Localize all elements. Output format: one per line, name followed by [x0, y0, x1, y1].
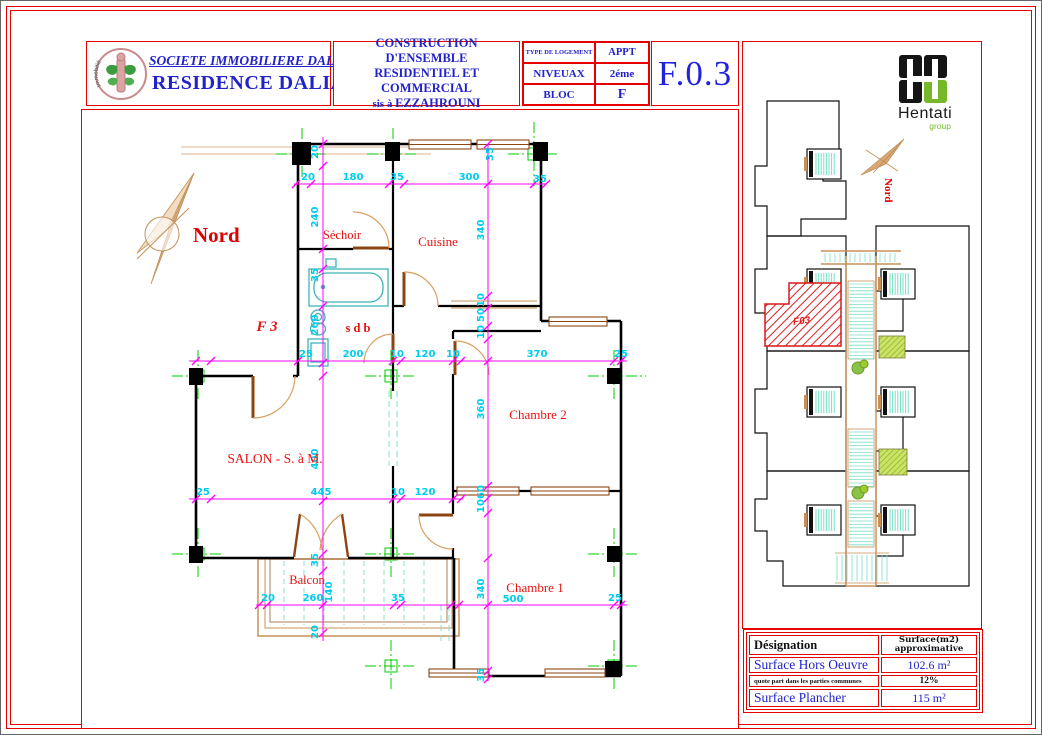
svg-text:25: 25 [614, 349, 628, 360]
svg-text:Chambre 1: Chambre 1 [506, 580, 563, 595]
svg-text:35: 35 [390, 172, 404, 183]
company-title-block: Immobilière Dalia SOCIETE IMMOBILIERE DA… [86, 41, 331, 106]
svg-text:20: 20 [301, 172, 315, 183]
north-arrow [137, 173, 194, 284]
svg-text:10: 10 [476, 499, 487, 513]
hentati-group-text: group [929, 121, 951, 131]
flat-type-label: F 3 [256, 319, 278, 335]
balcony-railing [258, 559, 459, 636]
site-north-label: Nord [882, 178, 894, 202]
svg-text:300: 300 [459, 172, 480, 183]
svg-text:445: 445 [311, 487, 332, 498]
svg-text:35: 35 [533, 174, 547, 185]
svg-text:25: 25 [299, 349, 313, 360]
surface-table-header-designation: Désignation [749, 635, 879, 655]
surface-hors-oeuvre-value: 102.6 m² [881, 657, 977, 673]
svg-text:260: 260 [310, 315, 321, 336]
drawing-code: F.0.3 [658, 54, 732, 94]
site-north-arrow [861, 139, 904, 175]
type-label: TYPE DE LOGEMENT [523, 42, 595, 63]
svg-text:50: 50 [476, 308, 487, 322]
level-label: NIVEUAX [523, 63, 595, 84]
svg-text:20: 20 [310, 145, 321, 159]
svg-text:140: 140 [324, 582, 335, 603]
hentati-brand-text: Hentati [898, 105, 952, 122]
svg-text:10: 10 [390, 349, 404, 360]
svg-text:10: 10 [446, 349, 460, 360]
bloc-label: BLOC [523, 84, 595, 105]
svg-text:SALON - S. à M.: SALON - S. à M. [227, 451, 322, 466]
floor-plan-svg: Nord F 3 [81, 109, 739, 729]
svg-text:370: 370 [527, 349, 548, 360]
svg-text:10: 10 [391, 487, 405, 498]
bloc-value: F [595, 84, 649, 105]
surface-table: Désignation Surface(m2) approximative Su… [743, 629, 983, 713]
svg-text:500: 500 [503, 594, 524, 605]
surface-plancher-label: Surface Plancher [749, 689, 879, 707]
project-title-block: CONSTRUCTION D'ENSEMBLE RESIDENTIEL ET C… [333, 41, 520, 106]
svg-text:Cuisine: Cuisine [418, 234, 458, 249]
site-plan-svg: Hentati group Nord [742, 41, 982, 629]
svg-text:60: 60 [476, 485, 487, 499]
svg-text:260: 260 [303, 593, 324, 604]
svg-text:25: 25 [608, 593, 622, 604]
svg-text:120: 120 [415, 349, 436, 360]
residence-name: RESIDENCE DALIA [149, 72, 349, 95]
svg-text:Séchoir: Séchoir [323, 228, 362, 242]
svg-text:25: 25 [196, 487, 210, 498]
project-line1: CONSTRUCTION D'ENSEMBLE [334, 36, 519, 66]
level-value: 2éme [595, 63, 649, 84]
surface-plancher-value: 115 m² [881, 689, 977, 707]
svg-text:200: 200 [343, 349, 364, 360]
svg-text:s d b: s d b [345, 321, 370, 335]
axis-centerlines [172, 122, 646, 692]
dalia-logo: Immobilière Dalia [93, 46, 149, 102]
svg-text:35: 35 [476, 668, 487, 682]
site-unit-highlight [765, 283, 841, 346]
type-value: APPT [595, 42, 649, 63]
svg-text:10: 10 [476, 293, 487, 307]
svg-text:35: 35 [485, 147, 496, 161]
surface-hors-oeuvre-label: Surface Hors Oeuvre [749, 657, 879, 673]
svg-text:Balcon: Balcon [289, 573, 325, 587]
svg-text:Chambre 2: Chambre 2 [509, 407, 566, 422]
svg-text:35: 35 [310, 268, 321, 282]
svg-text:20: 20 [310, 625, 321, 639]
north-label: Nord [193, 223, 240, 247]
quote-part-value: 12% [881, 675, 977, 687]
svg-text:35: 35 [391, 593, 405, 604]
svg-text:10: 10 [476, 325, 487, 339]
svg-text:180: 180 [343, 172, 364, 183]
apartment-type-table: TYPE DE LOGEMENT APPT NIVEUAX 2éme BLOC … [522, 41, 650, 106]
svg-text:340: 340 [476, 220, 487, 241]
project-line2: RESIDENTIEL ET COMMERCIAL [334, 66, 519, 96]
hentati-logo [899, 55, 947, 103]
planter-icons [852, 360, 868, 499]
svg-text:340: 340 [476, 579, 487, 600]
quote-part-label: quote part dans les parties communes [749, 675, 879, 687]
svg-text:360: 360 [476, 399, 487, 420]
site-unit-label: F03 [793, 315, 812, 328]
drawing-sheet: Immobilière Dalia SOCIETE IMMOBILIERE DA… [0, 0, 1042, 735]
surface-table-header-surface: Surface(m2) approximative [881, 635, 977, 655]
svg-text:35: 35 [310, 553, 321, 567]
site-stair-bands [848, 281, 874, 547]
drawing-code-block: F.0.3 [651, 41, 739, 106]
svg-text:20: 20 [261, 593, 275, 604]
dimension-labels-horizontal: 2018035300352520010120103702525445101202… [196, 172, 628, 605]
svg-text:120: 120 [415, 487, 436, 498]
svg-text:240: 240 [310, 207, 321, 228]
company-name: SOCIETE IMMOBILIERE DALIA [149, 53, 349, 69]
